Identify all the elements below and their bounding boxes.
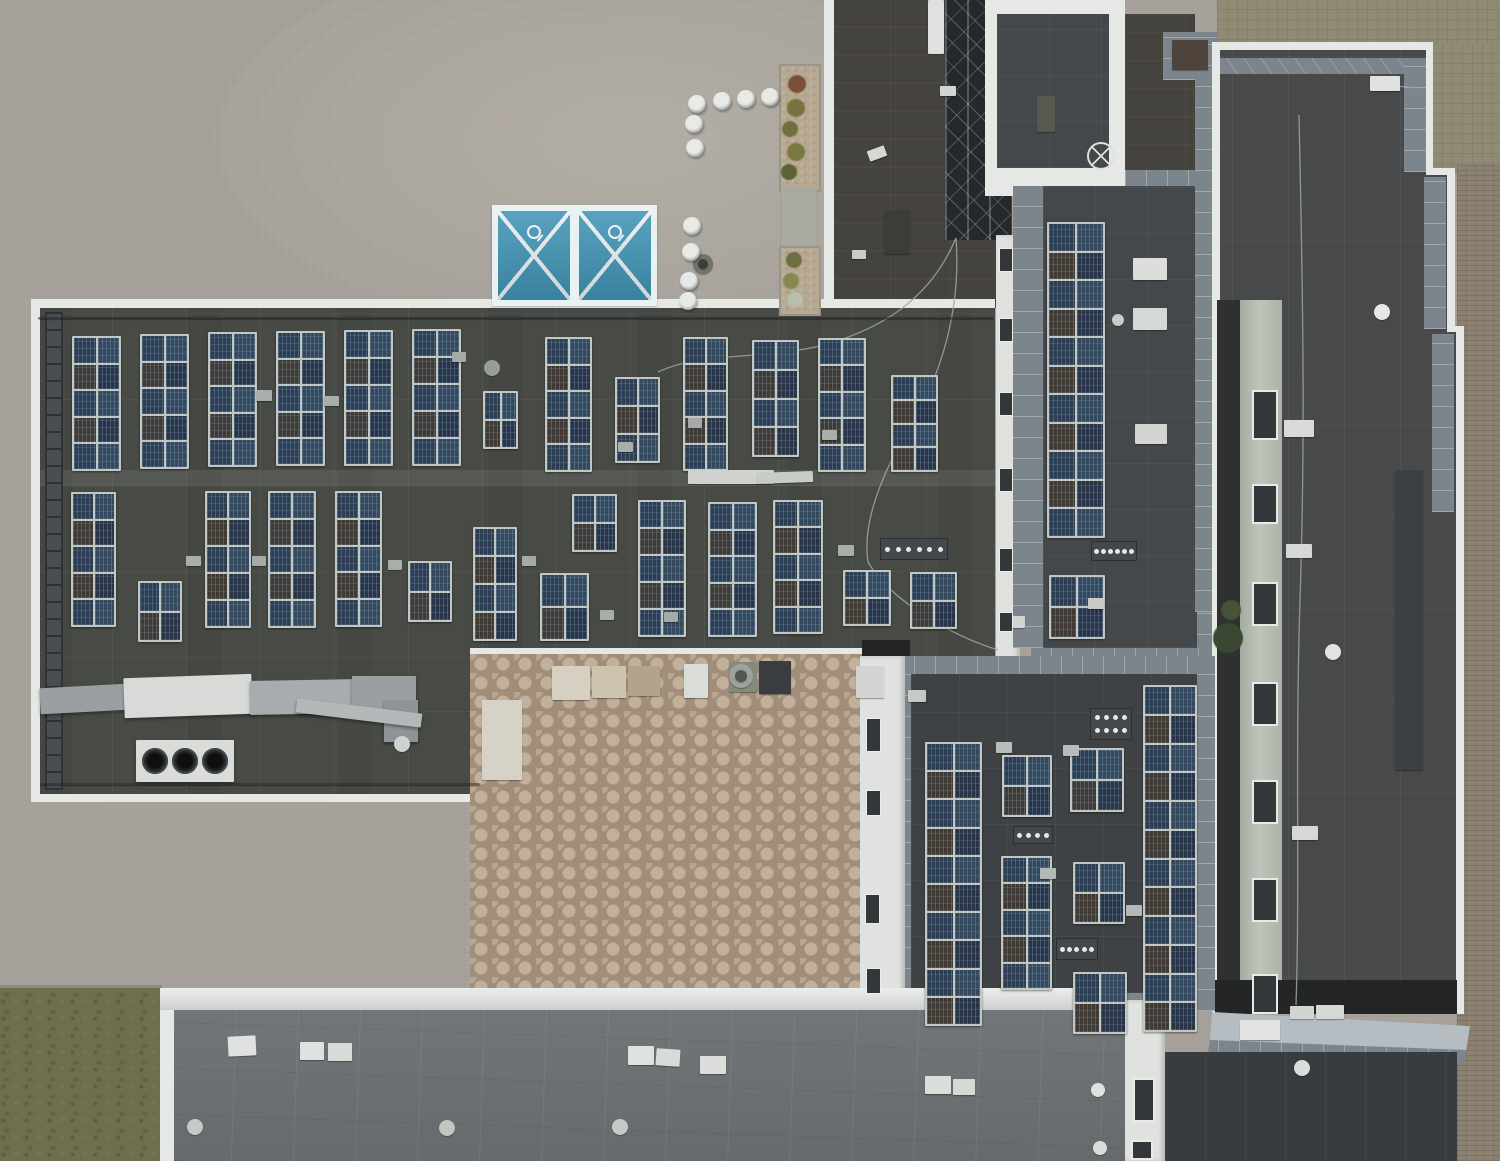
solar-module — [210, 414, 232, 439]
solar-module — [278, 413, 300, 438]
solar-module — [1077, 367, 1103, 394]
solar-module — [955, 857, 981, 883]
solar-module — [1077, 338, 1103, 365]
solar-module — [1101, 1004, 1125, 1032]
solar-module — [799, 502, 821, 526]
solar-module — [370, 412, 392, 437]
solar-module — [916, 448, 937, 470]
solar-module — [229, 493, 249, 518]
vent-manifold — [1013, 826, 1053, 844]
equipment-box — [1037, 96, 1055, 132]
solar-panel-array — [1047, 222, 1105, 538]
solar-module — [955, 941, 981, 967]
equipment-box — [908, 690, 926, 702]
right-facade-window — [1252, 974, 1278, 1014]
shrub — [787, 292, 803, 308]
solar-panel-array — [208, 332, 257, 467]
hvac-air-handler-unit — [123, 674, 252, 718]
equipment-box — [522, 556, 536, 566]
solar-module — [777, 371, 798, 398]
solar-panel-array — [683, 337, 728, 471]
left-roof-parapet-left — [31, 299, 40, 802]
solar-module — [1171, 860, 1195, 887]
solar-module — [73, 600, 93, 625]
solar-module — [1145, 773, 1169, 800]
solar-panel-array — [891, 375, 938, 472]
solar-module — [1049, 509, 1075, 536]
solar-module — [754, 400, 775, 427]
solar-module — [685, 365, 705, 389]
solar-module — [893, 425, 914, 447]
solar-module — [542, 575, 564, 606]
solar-module — [754, 342, 775, 369]
equipment-box — [40, 783, 480, 785]
fan-icon — [202, 748, 228, 774]
solar-module — [346, 439, 368, 464]
equipment-box — [684, 664, 708, 698]
solar-module — [1028, 757, 1050, 785]
equipment-box — [592, 666, 626, 698]
se-roof-slab-top — [893, 656, 1215, 674]
solar-module — [843, 446, 864, 470]
solar-module — [496, 585, 515, 611]
solar-module — [955, 913, 981, 939]
concrete-pad — [781, 188, 817, 246]
solar-module — [73, 574, 93, 599]
bollard-sphere — [713, 92, 731, 110]
equipment-box — [1172, 40, 1208, 70]
solar-module — [234, 414, 256, 439]
blue-sports-court — [492, 205, 657, 306]
solar-module — [927, 941, 953, 967]
equipment-box — [388, 560, 402, 570]
solar-module — [1171, 975, 1195, 1002]
solar-module — [820, 393, 841, 417]
bollard-sphere — [737, 90, 755, 108]
solar-module — [485, 393, 500, 419]
solar-panel-array — [545, 337, 592, 472]
left-roof-parapet-bottom — [31, 794, 484, 802]
solar-module — [360, 600, 381, 625]
solar-module — [820, 366, 841, 390]
solar-module — [346, 359, 368, 384]
solar-module — [302, 333, 324, 358]
solar-module — [234, 361, 256, 386]
solar-module — [1028, 787, 1050, 815]
top-center-building-edge — [824, 0, 834, 308]
solar-panel-array — [818, 338, 866, 472]
solar-module — [98, 338, 120, 363]
solar-module — [346, 332, 368, 357]
equipment-box — [1284, 420, 1314, 437]
solar-module — [1049, 224, 1075, 251]
right-building-under-parapet-slab — [1220, 58, 1426, 74]
solar-module — [229, 547, 249, 572]
equipment-box — [664, 612, 678, 622]
bottom-building-roof — [174, 1010, 1125, 1161]
solar-module — [1077, 424, 1103, 451]
solar-panel-array — [638, 500, 686, 637]
solar-module — [166, 336, 188, 361]
solar-module — [685, 445, 705, 469]
right-facade-window — [1252, 878, 1278, 922]
solar-module — [640, 556, 661, 581]
round-vent — [1093, 1141, 1107, 1155]
solar-module — [570, 339, 591, 364]
solar-panel-array — [412, 329, 461, 466]
solar-module — [927, 998, 953, 1024]
solar-module — [1145, 802, 1169, 829]
solar-panel-array — [1143, 685, 1197, 1032]
round-vent — [1294, 1060, 1310, 1076]
equipment-box — [628, 666, 660, 696]
solar-module — [438, 385, 460, 410]
solar-module — [1145, 946, 1169, 973]
shrub — [787, 99, 805, 117]
court-cell-right — [577, 209, 653, 302]
ladder-walkway — [45, 312, 63, 790]
solar-module — [140, 613, 159, 641]
solar-module — [74, 365, 96, 390]
solar-module — [73, 547, 93, 572]
equipment-box — [252, 556, 266, 566]
solar-module — [927, 885, 953, 911]
left-wall-window — [865, 894, 880, 924]
solar-module — [710, 557, 732, 582]
solar-module — [916, 425, 937, 447]
solar-module — [414, 412, 436, 437]
solar-module — [431, 563, 450, 591]
solar-module — [95, 521, 115, 546]
solar-module — [234, 440, 256, 465]
right-facade-window — [1252, 484, 1278, 524]
solar-panel-array — [1070, 748, 1124, 812]
tree-gap-band — [1217, 300, 1240, 1012]
solar-module — [207, 520, 227, 545]
roof-drain-marker — [1087, 142, 1115, 170]
solar-module — [1028, 911, 1051, 935]
solar-module — [370, 332, 392, 357]
solar-module — [639, 435, 659, 461]
solar-panel-array — [843, 570, 891, 626]
solar-module — [1051, 608, 1076, 637]
solar-module — [1075, 894, 1098, 922]
mid-wall-window — [999, 318, 1013, 342]
solar-module — [1049, 481, 1075, 508]
solar-module — [843, 393, 864, 417]
solar-module — [370, 439, 392, 464]
solar-module — [1072, 781, 1096, 810]
solar-module — [1049, 281, 1075, 308]
solar-module — [820, 340, 841, 364]
solar-module — [775, 555, 797, 579]
solar-module — [207, 547, 227, 572]
bollard-sphere — [679, 292, 697, 310]
right-facade-window — [1252, 582, 1278, 626]
solar-module — [754, 371, 775, 398]
equipment-box — [852, 250, 866, 259]
equipment-box — [1292, 826, 1318, 840]
solar-module — [485, 421, 500, 447]
solar-module — [438, 439, 460, 464]
solar-module — [547, 445, 568, 470]
solar-module — [207, 574, 227, 599]
solar-module — [293, 574, 314, 599]
solar-module — [1171, 773, 1195, 800]
solar-module — [360, 520, 381, 545]
shrub — [781, 164, 797, 180]
equipment-box — [552, 666, 590, 700]
right-facade-window — [1252, 780, 1278, 824]
equipment-box — [618, 442, 633, 452]
solar-module — [210, 440, 232, 465]
solar-module — [927, 857, 953, 883]
solar-module — [431, 593, 450, 621]
hvac-fan-unit — [136, 740, 234, 782]
solar-module — [346, 386, 368, 411]
solar-panel-array — [71, 492, 116, 627]
solar-module — [734, 557, 756, 582]
right-edge-slab-2 — [1424, 177, 1446, 329]
solar-module — [777, 400, 798, 427]
equipment-box — [1370, 76, 1400, 91]
left-wall-window — [866, 968, 881, 994]
solar-module — [1049, 253, 1075, 280]
solar-panel-array — [1073, 862, 1125, 924]
solar-module — [142, 389, 164, 414]
solar-module — [955, 800, 981, 826]
bollard-sphere — [683, 217, 701, 235]
equipment-box — [700, 1056, 726, 1074]
equipment-box — [688, 418, 702, 428]
solar-module — [74, 338, 96, 363]
solar-module — [166, 389, 188, 414]
solar-module — [302, 439, 324, 464]
solar-module — [710, 584, 732, 609]
solar-module — [1171, 831, 1195, 858]
fan-icon — [142, 748, 168, 774]
round-vent — [187, 1119, 203, 1135]
solar-module — [547, 366, 568, 391]
solar-module — [414, 331, 436, 356]
equipment-box — [953, 1079, 975, 1095]
solar-module — [1077, 452, 1103, 479]
solar-module — [955, 998, 981, 1024]
right-facade-window — [1252, 390, 1278, 440]
equipment-box — [1133, 258, 1167, 280]
solar-module — [234, 334, 256, 359]
solar-module — [843, 340, 864, 364]
solar-module — [98, 391, 120, 416]
solar-module — [799, 608, 821, 632]
solar-panel-array — [483, 391, 518, 449]
solar-module — [775, 502, 797, 526]
solar-module — [293, 601, 314, 626]
shrub — [782, 121, 798, 137]
solar-module — [142, 416, 164, 441]
solar-module — [542, 608, 564, 639]
solar-module — [73, 521, 93, 546]
solar-module — [1049, 310, 1075, 337]
solar-module — [574, 524, 594, 550]
solar-module — [935, 574, 956, 600]
solar-module — [955, 772, 981, 798]
solar-panel-array — [473, 527, 517, 641]
bottom-wall-window — [1133, 1078, 1155, 1122]
solar-module — [927, 800, 953, 826]
solar-module — [1145, 716, 1169, 743]
solar-module — [663, 583, 684, 608]
solar-module — [570, 419, 591, 444]
solar-module — [707, 339, 727, 363]
solar-module — [74, 391, 96, 416]
right-facade-window — [1252, 682, 1278, 726]
solar-module — [360, 573, 381, 598]
solar-module — [893, 401, 914, 423]
solar-module — [293, 520, 314, 545]
shower-pictogram-icon — [608, 225, 622, 239]
solar-panel-array — [268, 491, 316, 628]
equipment-box — [856, 666, 884, 698]
right-edge-slab-3 — [1432, 334, 1454, 512]
solar-module — [775, 608, 797, 632]
solar-module — [868, 599, 889, 624]
solar-module — [95, 600, 115, 625]
solar-module — [547, 339, 568, 364]
solar-module — [639, 407, 659, 433]
solar-module — [207, 493, 227, 518]
solar-module — [1028, 884, 1051, 908]
solar-module — [74, 418, 96, 443]
equipment-box — [482, 700, 522, 780]
solar-module — [547, 392, 568, 417]
solar-module — [1171, 687, 1195, 714]
solar-module — [845, 572, 866, 597]
solar-module — [927, 744, 953, 770]
se-roof-west-wall — [860, 656, 905, 1010]
solar-module — [1051, 577, 1076, 606]
solar-module — [414, 439, 436, 464]
bollard-sphere — [761, 88, 779, 106]
solar-module — [1145, 687, 1169, 714]
solar-module — [927, 913, 953, 939]
solar-module — [1100, 864, 1123, 892]
courtyard-pavers — [470, 654, 862, 1005]
solar-module — [1077, 395, 1103, 422]
equipment-box — [1240, 1020, 1280, 1040]
solar-module — [935, 602, 956, 628]
vent-manifold — [1091, 541, 1137, 561]
solar-module — [270, 574, 291, 599]
equipment-box — [186, 556, 201, 566]
equipment-box — [1133, 308, 1167, 330]
solar-module — [1003, 964, 1026, 988]
equipment-box — [1063, 745, 1079, 756]
solar-module — [74, 444, 96, 469]
solar-module — [566, 575, 588, 606]
equipment-box — [1395, 470, 1423, 770]
solar-module — [955, 744, 981, 770]
equipment-box — [1316, 1005, 1344, 1019]
solar-module — [734, 584, 756, 609]
equipment-box — [1290, 1006, 1314, 1019]
solar-module — [734, 504, 756, 529]
solar-module — [302, 360, 324, 385]
solar-module — [414, 358, 436, 383]
solar-module — [1145, 888, 1169, 915]
solar-panel-array — [910, 572, 957, 629]
solar-panel-array — [72, 336, 121, 471]
solar-module — [754, 428, 775, 455]
vent-manifold — [1056, 938, 1098, 960]
solar-module — [1049, 338, 1075, 365]
solar-panel-array — [572, 494, 617, 552]
solar-panel-array — [408, 561, 452, 622]
shrub — [1221, 600, 1241, 620]
solar-module — [1003, 884, 1026, 908]
solar-module — [639, 379, 659, 405]
solar-module — [570, 392, 591, 417]
solar-module — [1145, 917, 1169, 944]
equipment-box — [452, 352, 466, 362]
solar-module — [229, 520, 249, 545]
solar-module — [270, 547, 291, 572]
vent-manifold — [1090, 708, 1132, 740]
solar-module — [912, 602, 933, 628]
solar-module — [337, 547, 358, 572]
solar-module — [166, 363, 188, 388]
solar-module — [166, 442, 188, 467]
solar-module — [414, 385, 436, 410]
solar-module — [570, 366, 591, 391]
se-roof-slab-right — [1197, 656, 1215, 1011]
round-vent — [1325, 644, 1341, 660]
bollard-sphere — [686, 139, 704, 157]
solar-module — [1077, 310, 1103, 337]
solar-module — [927, 829, 953, 855]
equipment-box — [324, 396, 339, 406]
solar-module — [893, 448, 914, 470]
solar-module — [916, 377, 937, 399]
bollard-sphere — [688, 95, 706, 113]
solar-module — [1077, 224, 1103, 251]
solar-module — [346, 412, 368, 437]
solar-module — [496, 613, 515, 639]
solar-module — [496, 557, 515, 583]
solar-module — [1171, 917, 1195, 944]
solar-module — [475, 529, 494, 555]
solar-module — [707, 418, 727, 442]
solar-module — [1171, 745, 1195, 772]
solar-module — [1049, 452, 1075, 479]
equipment-box — [328, 1043, 352, 1061]
solar-module — [927, 772, 953, 798]
solar-module — [210, 334, 232, 359]
round-vent — [1112, 314, 1124, 326]
solar-module — [1171, 802, 1195, 829]
solar-module — [912, 574, 933, 600]
aerial-photo-stage — [0, 0, 1500, 1161]
equipment-box — [227, 1035, 256, 1056]
shrub — [787, 143, 805, 161]
solar-module — [1075, 864, 1098, 892]
solar-module — [278, 360, 300, 385]
solar-module — [547, 419, 568, 444]
solar-module — [337, 493, 358, 518]
solar-module — [502, 393, 517, 419]
solar-module — [337, 600, 358, 625]
solar-module — [1028, 937, 1051, 961]
